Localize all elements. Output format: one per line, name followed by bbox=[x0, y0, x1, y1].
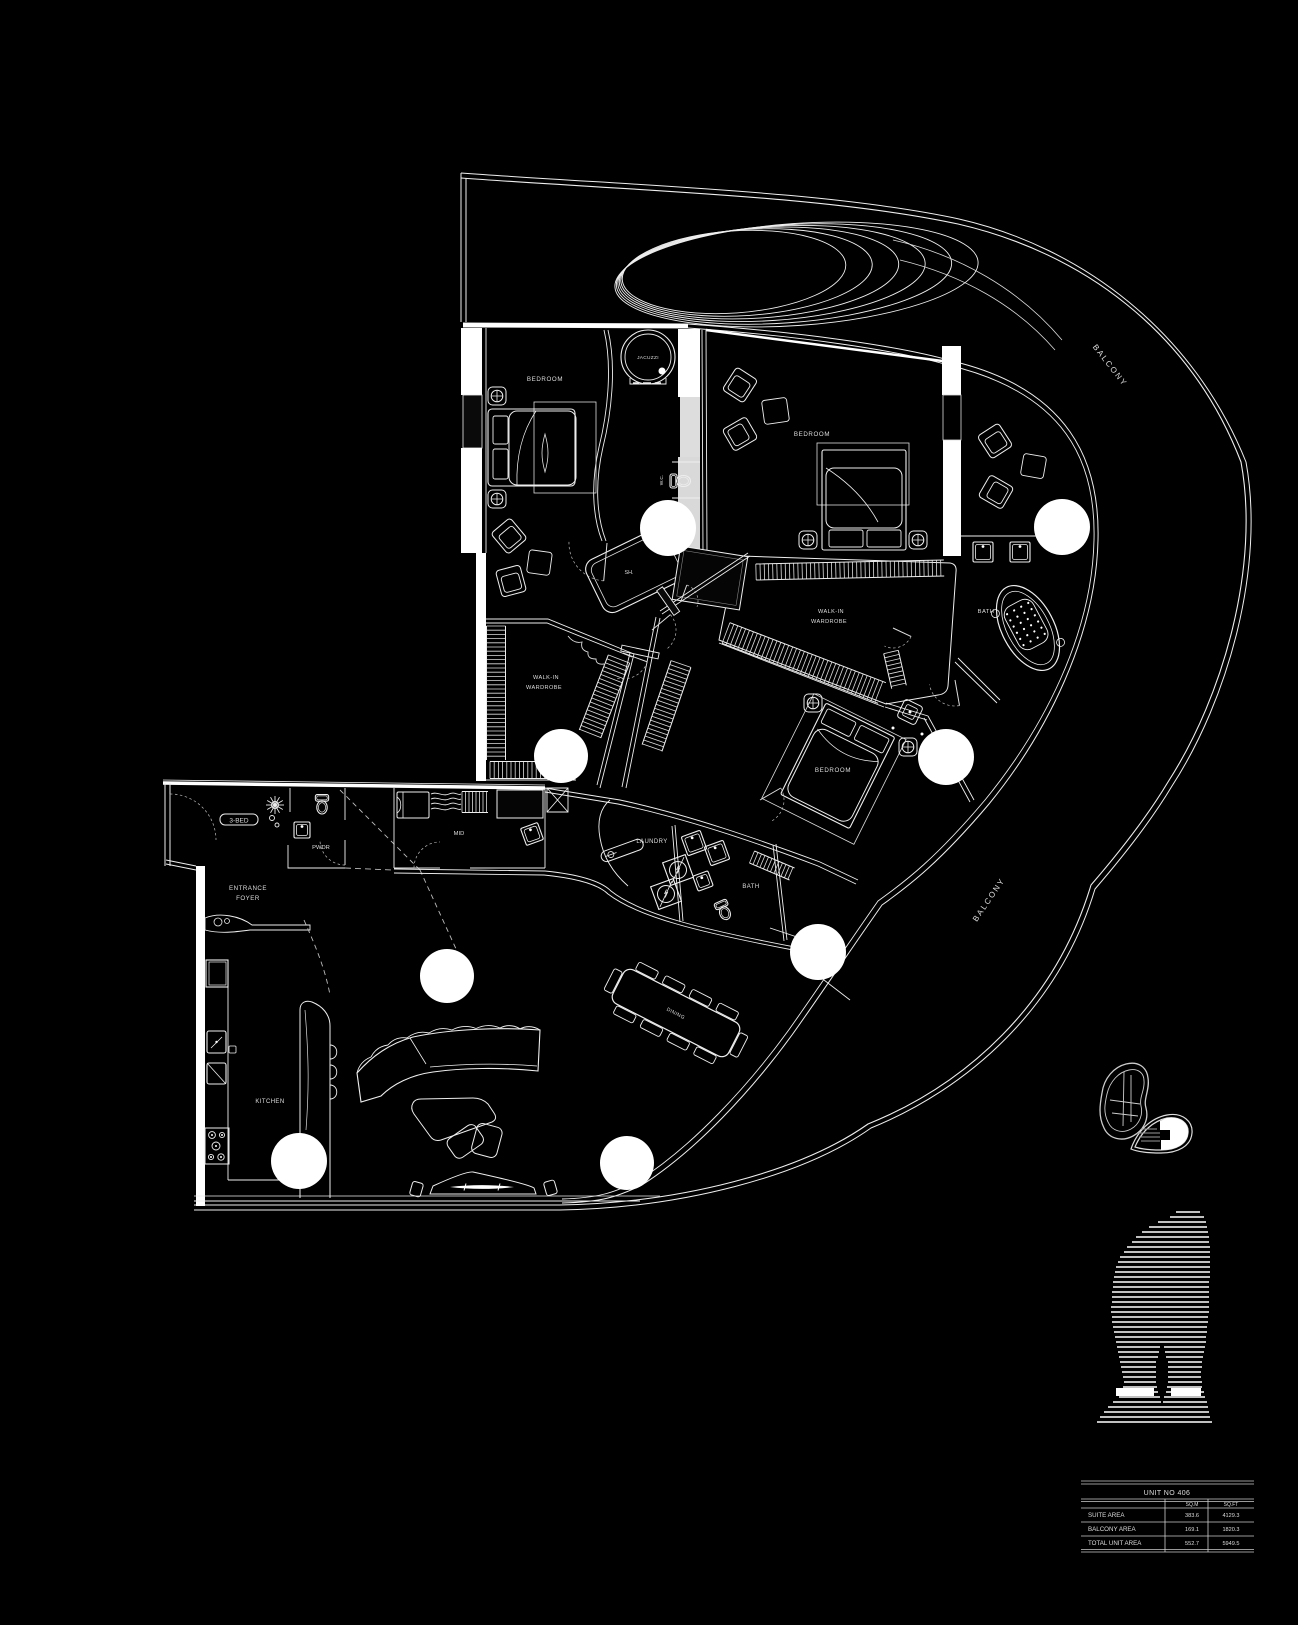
svg-text:WARDROBE: WARDROBE bbox=[811, 619, 847, 625]
svg-text:SUITE AREA: SUITE AREA bbox=[1088, 1512, 1125, 1519]
svg-text:WALK-IN: WALK-IN bbox=[533, 675, 559, 681]
svg-text:ENTRANCE: ENTRANCE bbox=[229, 885, 267, 892]
svg-text:552.7: 552.7 bbox=[1185, 1541, 1199, 1547]
svg-text:W.C.: W.C. bbox=[659, 475, 665, 485]
svg-text:UNIT NO 406: UNIT NO 406 bbox=[1144, 1490, 1191, 1497]
svg-text:SQ.FT: SQ.FT bbox=[1224, 1502, 1239, 1508]
svg-text:KITCHEN: KITCHEN bbox=[255, 1099, 284, 1105]
svg-text:SQ.M: SQ.M bbox=[1186, 1502, 1199, 1508]
svg-text:MID: MID bbox=[454, 831, 465, 837]
svg-text:4129.3: 4129.3 bbox=[1222, 1513, 1239, 1519]
svg-text:1820.3: 1820.3 bbox=[1222, 1527, 1239, 1533]
svg-text:169.1: 169.1 bbox=[1185, 1527, 1199, 1533]
svg-text:383.6: 383.6 bbox=[1185, 1513, 1199, 1519]
svg-text:WALK-IN: WALK-IN bbox=[818, 609, 844, 615]
svg-text:3-BED: 3-BED bbox=[229, 818, 248, 825]
svg-text:BEDROOM: BEDROOM bbox=[794, 431, 830, 438]
svg-text:BALCONY AREA: BALCONY AREA bbox=[1088, 1526, 1137, 1533]
svg-text:BEDROOM: BEDROOM bbox=[815, 767, 851, 774]
svg-text:WARDROBE: WARDROBE bbox=[526, 685, 562, 691]
svg-text:JACUZZI: JACUZZI bbox=[637, 355, 659, 361]
svg-text:FOYER: FOYER bbox=[236, 895, 260, 902]
svg-text:SH.: SH. bbox=[625, 570, 634, 576]
svg-text:BATH: BATH bbox=[742, 884, 759, 890]
svg-text:5949.5: 5949.5 bbox=[1222, 1541, 1239, 1547]
svg-text:TOTAL UNIT AREA: TOTAL UNIT AREA bbox=[1088, 1540, 1142, 1547]
svg-text:BEDROOM: BEDROOM bbox=[527, 376, 563, 383]
